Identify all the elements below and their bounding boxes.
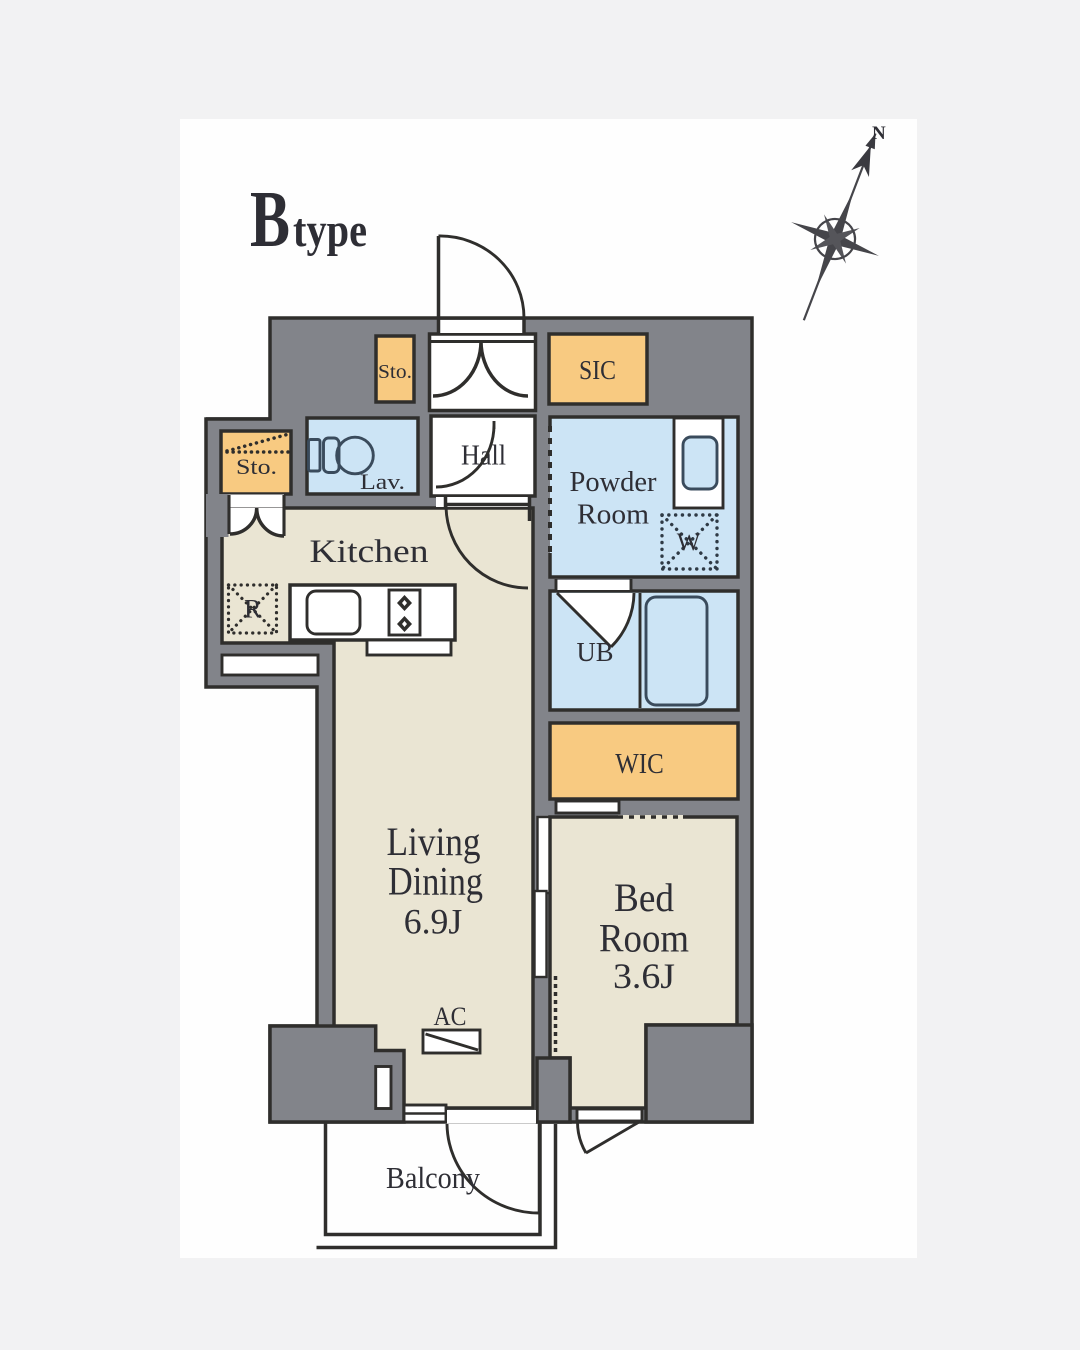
svg-text:Lav.: Lav.	[360, 469, 405, 494]
svg-text:Sto.: Sto.	[236, 454, 277, 479]
svg-text:AC: AC	[434, 1002, 467, 1031]
svg-text:Sto.: Sto.	[378, 361, 412, 383]
svg-text:Dining: Dining	[388, 859, 483, 904]
svg-text:type: type	[293, 204, 367, 257]
svg-text:W: W	[677, 529, 701, 556]
svg-text:Living: Living	[387, 819, 481, 864]
svg-text:Hall: Hall	[461, 441, 506, 472]
svg-text:N: N	[872, 123, 886, 144]
svg-text:B: B	[250, 176, 290, 264]
svg-text:SIC: SIC	[579, 355, 616, 385]
svg-text:R: R	[244, 595, 262, 624]
svg-text:Balcony: Balcony	[386, 1160, 480, 1195]
svg-text:WIC: WIC	[615, 749, 664, 780]
svg-text:Room: Room	[599, 916, 689, 961]
svg-text:3.6J: 3.6J	[613, 956, 675, 996]
svg-text:6.9J: 6.9J	[404, 902, 463, 942]
svg-text:Powder: Powder	[570, 467, 658, 498]
svg-text:Bed: Bed	[614, 875, 674, 920]
svg-text:UB: UB	[577, 637, 614, 667]
svg-text:Room: Room	[577, 500, 649, 531]
svg-text:Kitchen: Kitchen	[310, 534, 429, 570]
